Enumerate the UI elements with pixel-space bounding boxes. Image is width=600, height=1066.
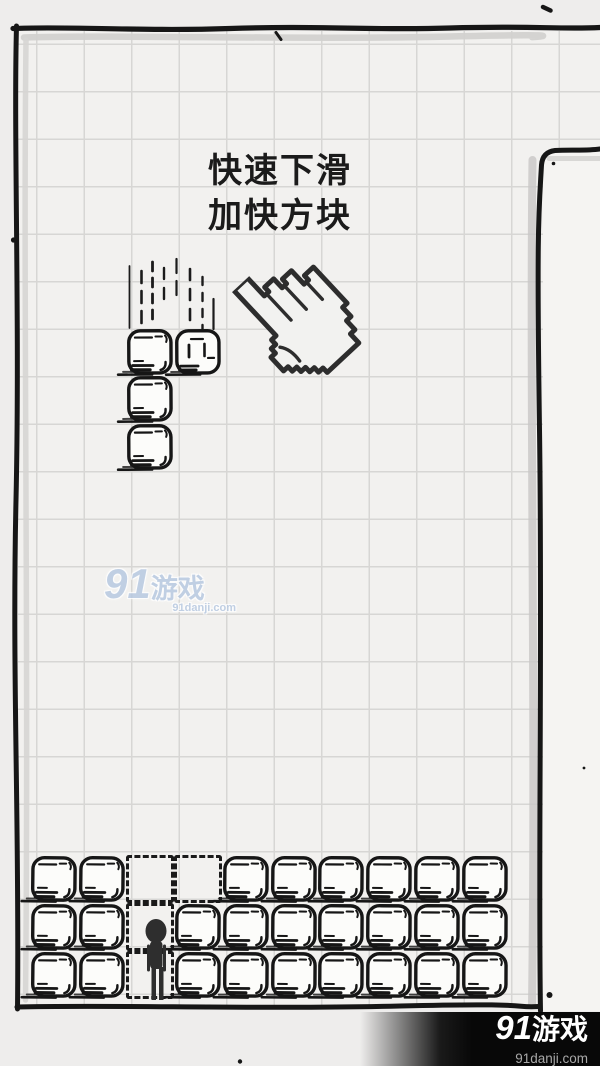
- stack-block: [365, 950, 413, 998]
- stack-block: [30, 902, 79, 951]
- falling-block: [174, 327, 222, 375]
- stack-block: [78, 902, 127, 951]
- falling-block: [126, 375, 174, 423]
- stack-block: [269, 855, 317, 903]
- watermark-logo: 91游戏: [104, 585, 205, 602]
- watermark-corner-site: 91danji.com: [515, 1051, 588, 1066]
- watermark-center: 91游戏 91danji.com: [104, 564, 238, 614]
- stack-block: [317, 903, 365, 951]
- falling-block: [126, 327, 174, 375]
- stack-block: [461, 903, 509, 951]
- game-screen[interactable]: 快速下滑 加快方块 91游戏 91danji.com 91游戏 91danji.…: [0, 0, 600, 1066]
- stack-block: [413, 950, 461, 998]
- stick-figure-body: [150, 941, 163, 969]
- stack-block: [221, 855, 269, 903]
- stack-block: [317, 950, 365, 998]
- tutorial-line-2: 加快方块: [130, 194, 430, 239]
- watermark-bar: 91游戏 91danji.com: [360, 1012, 600, 1066]
- stack-block: [78, 950, 127, 999]
- stack-block: [30, 950, 79, 999]
- stack-block: [269, 950, 317, 998]
- stack-block: [30, 854, 79, 903]
- watermark-corner-logo: 91游戏: [495, 1013, 588, 1050]
- stick-figure: [126, 912, 184, 1004]
- stick-figure-leg: [159, 967, 164, 1000]
- tutorial-line-1: 快速下滑: [130, 149, 430, 194]
- stack-block: [269, 902, 317, 950]
- stack-block: [461, 950, 509, 998]
- stack-block: [413, 903, 461, 951]
- stack-block: [317, 855, 365, 903]
- stack-block: [221, 902, 269, 950]
- stick-figure-leg: [152, 967, 157, 1000]
- ghost-cell: [174, 855, 222, 903]
- stack-block: [461, 855, 509, 903]
- stack-block: [413, 855, 461, 903]
- stack-block: [365, 903, 413, 951]
- falling-block: [126, 423, 174, 471]
- stack-block: [78, 855, 127, 904]
- stick-figure-head: [146, 919, 167, 943]
- ghost-cell: [126, 855, 174, 903]
- stack-block: [365, 855, 413, 903]
- tutorial-text: 快速下滑 加快方块: [130, 149, 430, 239]
- stack-block: [221, 950, 269, 998]
